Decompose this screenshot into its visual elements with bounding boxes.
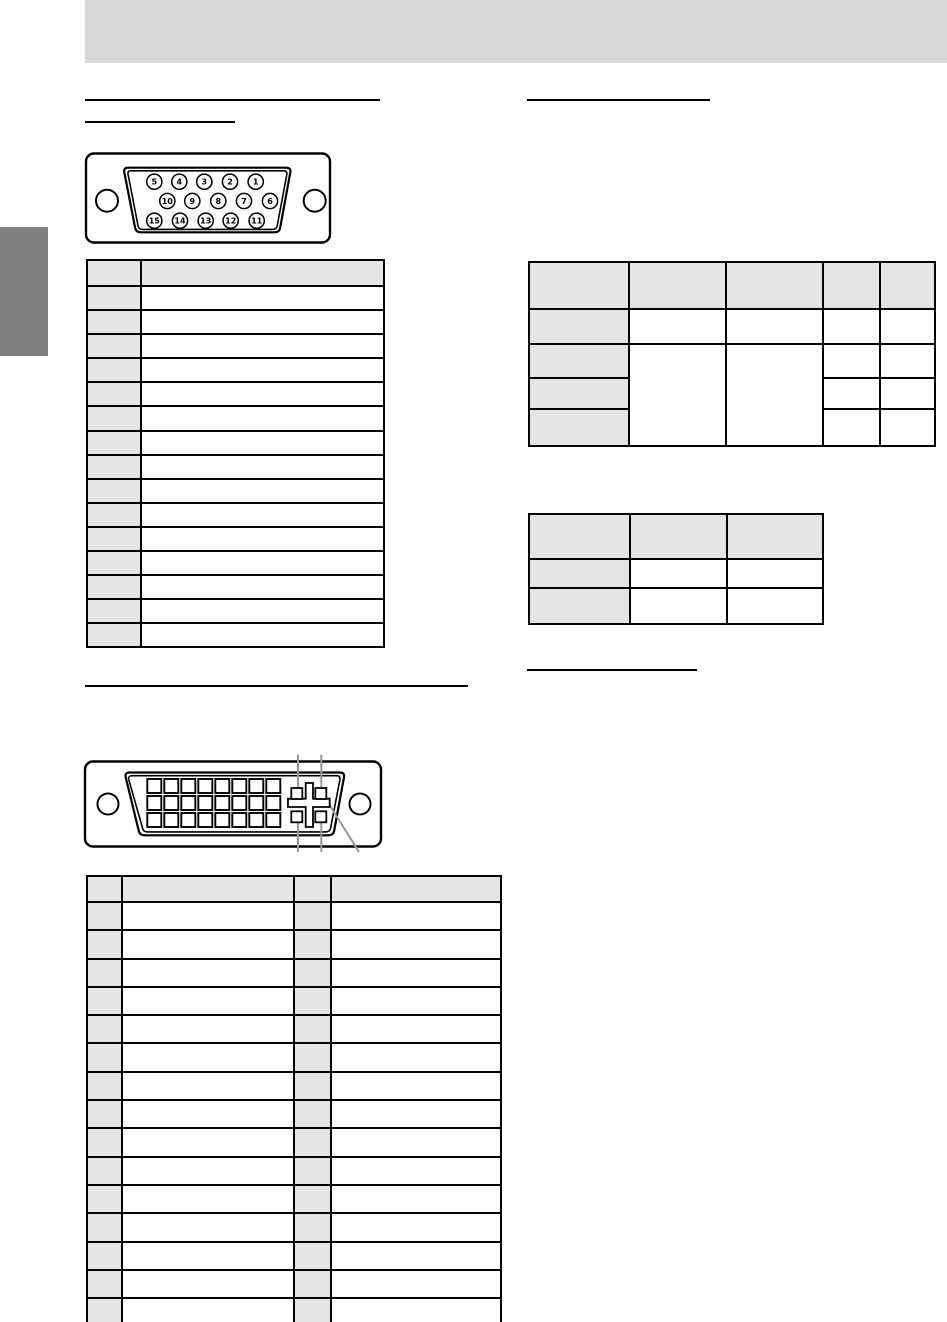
dvi-pin-square	[147, 813, 161, 827]
table-cell	[331, 1157, 501, 1185]
dvi-screw-hole-left	[98, 794, 119, 815]
table-cell	[122, 1242, 294, 1270]
vga-pin-number: 7	[241, 197, 247, 206]
table-cell	[141, 479, 384, 503]
table-header-cell	[87, 260, 141, 286]
row-header-cell	[529, 409, 629, 446]
dvi-pin-square	[181, 779, 195, 793]
row-header-cell	[529, 588, 630, 624]
table-header-row	[87, 260, 384, 286]
table-cell	[880, 309, 935, 344]
table-cell	[122, 1015, 294, 1043]
dvi-pin-square	[232, 813, 246, 827]
row-header-cell	[87, 902, 122, 930]
row-header-cell	[294, 1298, 331, 1322]
table-row	[87, 959, 501, 987]
vga-pin-number: 9	[190, 197, 196, 206]
row-header-cell	[87, 1015, 122, 1043]
dvi-pin-square	[147, 796, 161, 810]
table-row	[87, 902, 501, 930]
row-header-cell	[87, 575, 141, 599]
vga-pin-table	[86, 259, 385, 648]
dvi-pin-square	[215, 796, 229, 810]
table-row	[87, 431, 384, 455]
heading-rule-left-secondary	[85, 121, 235, 123]
table-cell	[331, 930, 501, 958]
dvi-pin-square	[232, 779, 246, 793]
table-cell	[331, 1100, 501, 1128]
row-header-cell	[294, 1185, 331, 1213]
table-header-cell	[880, 262, 935, 309]
table-row	[87, 503, 384, 527]
row-header-cell	[294, 930, 331, 958]
row-header-cell	[87, 1100, 122, 1128]
row-header-cell	[87, 959, 122, 987]
dvi-pin-square	[215, 779, 229, 793]
table-cell	[122, 1043, 294, 1071]
vga-pin-number: 5	[152, 178, 158, 187]
table-cell	[331, 1270, 501, 1298]
table-cell	[630, 588, 727, 624]
table-cell	[122, 1270, 294, 1298]
dvi-pin-square	[198, 813, 212, 827]
table-cell	[122, 1298, 294, 1322]
table-cell	[331, 1242, 501, 1270]
dvi-connector-diagram	[78, 750, 390, 858]
table-row	[87, 1043, 501, 1071]
row-header-cell	[87, 455, 141, 479]
row-header-cell	[87, 358, 141, 382]
table-cell	[141, 286, 384, 310]
table-row	[87, 1157, 501, 1185]
dvi-corner-pin-c4	[315, 811, 326, 822]
table-row	[87, 1242, 501, 1270]
table-row	[87, 1270, 501, 1298]
table-row	[87, 987, 501, 1015]
row-header-cell	[87, 1213, 122, 1241]
table-cell	[331, 1015, 501, 1043]
row-header-cell	[294, 1128, 331, 1156]
table-row	[87, 623, 384, 647]
heading-rule-dvi-section	[85, 685, 468, 687]
dvi-pin-square	[266, 796, 280, 810]
row-header-cell	[294, 1043, 331, 1071]
table-row	[529, 514, 823, 559]
table-cell	[331, 959, 501, 987]
table-row	[87, 1185, 501, 1213]
vga-screw-hole-right	[304, 190, 326, 212]
table-header-row	[87, 876, 501, 902]
table-cell	[331, 1043, 501, 1071]
table-header-cell	[331, 876, 501, 902]
table-row	[87, 1015, 501, 1043]
table-header-cell	[823, 262, 880, 309]
row-header-cell	[87, 334, 141, 358]
page-header-bar	[85, 0, 947, 63]
vga-pin-number: 3	[202, 178, 208, 187]
table-cell	[823, 344, 880, 378]
dvi-pin-square	[198, 779, 212, 793]
row-header-cell	[87, 310, 141, 334]
table-row	[87, 286, 384, 310]
table-cell	[141, 455, 384, 479]
row-header-cell	[294, 1157, 331, 1185]
table-cell	[141, 310, 384, 334]
table-cell	[122, 1128, 294, 1156]
dvi-pin-square	[164, 779, 178, 793]
row-header-cell	[87, 1270, 122, 1298]
vga-pin-number: 11	[251, 217, 263, 226]
table-row	[87, 575, 384, 599]
table-cell	[880, 344, 935, 378]
table-row	[87, 334, 384, 358]
signal-level-table	[528, 513, 824, 625]
table-row	[87, 551, 384, 575]
table-cell-merged	[726, 344, 823, 446]
vga-pin-number: 14	[174, 217, 186, 226]
row-header-cell	[294, 1015, 331, 1043]
table-cell	[331, 987, 501, 1015]
table-cell-merged	[629, 344, 726, 446]
table-cell	[141, 358, 384, 382]
table-cell	[122, 1100, 294, 1128]
table-cell	[122, 987, 294, 1015]
table-cell	[727, 559, 823, 588]
heading-rule-right-primary	[527, 99, 710, 101]
row-header-cell	[87, 286, 141, 310]
table-cell	[331, 1128, 501, 1156]
table-header-cell	[87, 876, 122, 902]
table-row	[87, 358, 384, 382]
row-header-cell	[294, 902, 331, 930]
table-cell	[823, 409, 880, 446]
dvi-corner-pin-c2	[315, 788, 326, 799]
table-cell	[141, 431, 384, 455]
dvi-pin-square	[232, 796, 246, 810]
table-cell	[331, 902, 501, 930]
table-cell	[331, 1185, 501, 1213]
table-cell	[141, 551, 384, 575]
vga-connector-diagram: 543211098761514131211	[80, 148, 340, 250]
vga-pin-number: 1	[253, 178, 259, 187]
row-header-cell	[87, 406, 141, 430]
table-row	[87, 930, 501, 958]
dvi-pin-square	[164, 796, 178, 810]
table-cell	[823, 309, 880, 344]
table-cell	[823, 378, 880, 409]
row-header-cell	[87, 623, 141, 647]
row-header-cell	[87, 1298, 122, 1322]
table-row	[529, 588, 823, 624]
vga-pin-number: 12	[225, 217, 236, 226]
dvi-pin-square	[266, 779, 280, 793]
row-header-cell	[294, 1072, 331, 1100]
dvi-screw-hole-right	[350, 794, 371, 815]
dvi-corner-pin-c3	[291, 811, 302, 822]
table-header-cell	[726, 262, 823, 309]
row-header-cell	[87, 503, 141, 527]
table-header-cell	[122, 876, 294, 902]
table-cell	[141, 527, 384, 551]
table-cell	[141, 599, 384, 623]
row-header-cell	[294, 1100, 331, 1128]
table-header-cell	[529, 262, 629, 309]
table-row	[87, 1100, 501, 1128]
table-cell	[726, 309, 823, 344]
table-cell	[122, 902, 294, 930]
row-header-cell	[87, 382, 141, 406]
row-header-cell	[87, 1242, 122, 1270]
row-header-cell	[87, 527, 141, 551]
table-cell	[122, 1185, 294, 1213]
vga-screw-hole-left	[96, 190, 118, 212]
row-header-cell	[529, 344, 629, 378]
sync-signal-table	[528, 261, 936, 447]
heading-rule-left-primary	[85, 99, 380, 101]
table-cell	[629, 309, 726, 344]
vga-pin-number: 2	[227, 178, 233, 187]
chapter-side-tab	[0, 227, 48, 356]
row-header-cell	[87, 1185, 122, 1213]
row-header-cell	[294, 1270, 331, 1298]
row-header-cell	[87, 551, 141, 575]
dvi-pin-table	[86, 875, 502, 1322]
table-header-cell	[294, 876, 331, 902]
row-header-cell	[87, 431, 141, 455]
document-page: 543211098761514131211	[0, 0, 947, 1322]
row-header-cell	[294, 987, 331, 1015]
dvi-pin-square	[266, 813, 280, 827]
table-row	[87, 1213, 501, 1241]
table-header-cell	[529, 514, 630, 559]
table-cell	[122, 1157, 294, 1185]
vga-pin-number: 4	[177, 178, 183, 187]
table-cell	[880, 409, 935, 446]
table-row	[529, 309, 935, 344]
table-cell	[880, 378, 935, 409]
table-row	[87, 406, 384, 430]
table-cell	[141, 382, 384, 406]
dvi-pin-square	[249, 813, 263, 827]
dvi-pin-square	[249, 796, 263, 810]
row-header-cell	[87, 987, 122, 1015]
table-cell	[331, 1213, 501, 1241]
table-cell	[141, 575, 384, 599]
dvi-pin-square	[181, 813, 195, 827]
table-row	[87, 479, 384, 503]
row-header-cell	[87, 1043, 122, 1071]
dvi-pin-square	[164, 813, 178, 827]
vga-pin-number: 15	[149, 217, 161, 226]
table-cell	[122, 930, 294, 958]
table-cell	[727, 588, 823, 624]
table-row	[87, 599, 384, 623]
table-cell	[141, 623, 384, 647]
row-header-cell	[87, 1157, 122, 1185]
row-header-cell	[529, 309, 629, 344]
table-cell	[331, 1298, 501, 1322]
table-row	[529, 262, 935, 309]
table-cell	[630, 559, 727, 588]
row-header-cell	[294, 1213, 331, 1241]
table-row	[87, 1072, 501, 1100]
vga-pin-number: 8	[216, 197, 222, 206]
table-row	[529, 344, 935, 378]
table-row	[87, 455, 384, 479]
row-header-cell	[87, 1128, 122, 1156]
table-row	[87, 310, 384, 334]
heading-rule-right-secondary	[527, 669, 697, 671]
table-header-cell	[141, 260, 384, 286]
row-header-cell	[87, 930, 122, 958]
dvi-pin-square	[215, 813, 229, 827]
table-header-cell	[630, 514, 727, 559]
table-header-cell	[629, 262, 726, 309]
dvi-pin-square	[198, 796, 212, 810]
vga-pin-number: 6	[267, 197, 273, 206]
table-cell	[122, 1213, 294, 1241]
dvi-pin-square	[147, 779, 161, 793]
row-header-cell	[87, 1072, 122, 1100]
table-cell	[331, 1072, 501, 1100]
table-cell	[122, 959, 294, 987]
dvi-corner-pin-c1	[291, 788, 302, 799]
row-header-cell	[529, 559, 630, 588]
table-row	[529, 559, 823, 588]
row-header-cell	[294, 1242, 331, 1270]
table-row	[87, 382, 384, 406]
row-header-cell	[87, 599, 141, 623]
row-header-cell	[529, 378, 629, 409]
dvi-pin-square	[249, 779, 263, 793]
vga-pin-number: 10	[162, 197, 174, 206]
table-row	[87, 1128, 501, 1156]
table-cell	[141, 406, 384, 430]
table-cell	[141, 503, 384, 527]
dvi-pin-square	[181, 796, 195, 810]
table-cell	[141, 334, 384, 358]
row-header-cell	[87, 479, 141, 503]
vga-pin-number: 13	[200, 217, 211, 226]
table-row	[87, 527, 384, 551]
table-header-cell	[727, 514, 823, 559]
row-header-cell	[294, 959, 331, 987]
table-row	[87, 1298, 501, 1322]
table-cell	[122, 1072, 294, 1100]
